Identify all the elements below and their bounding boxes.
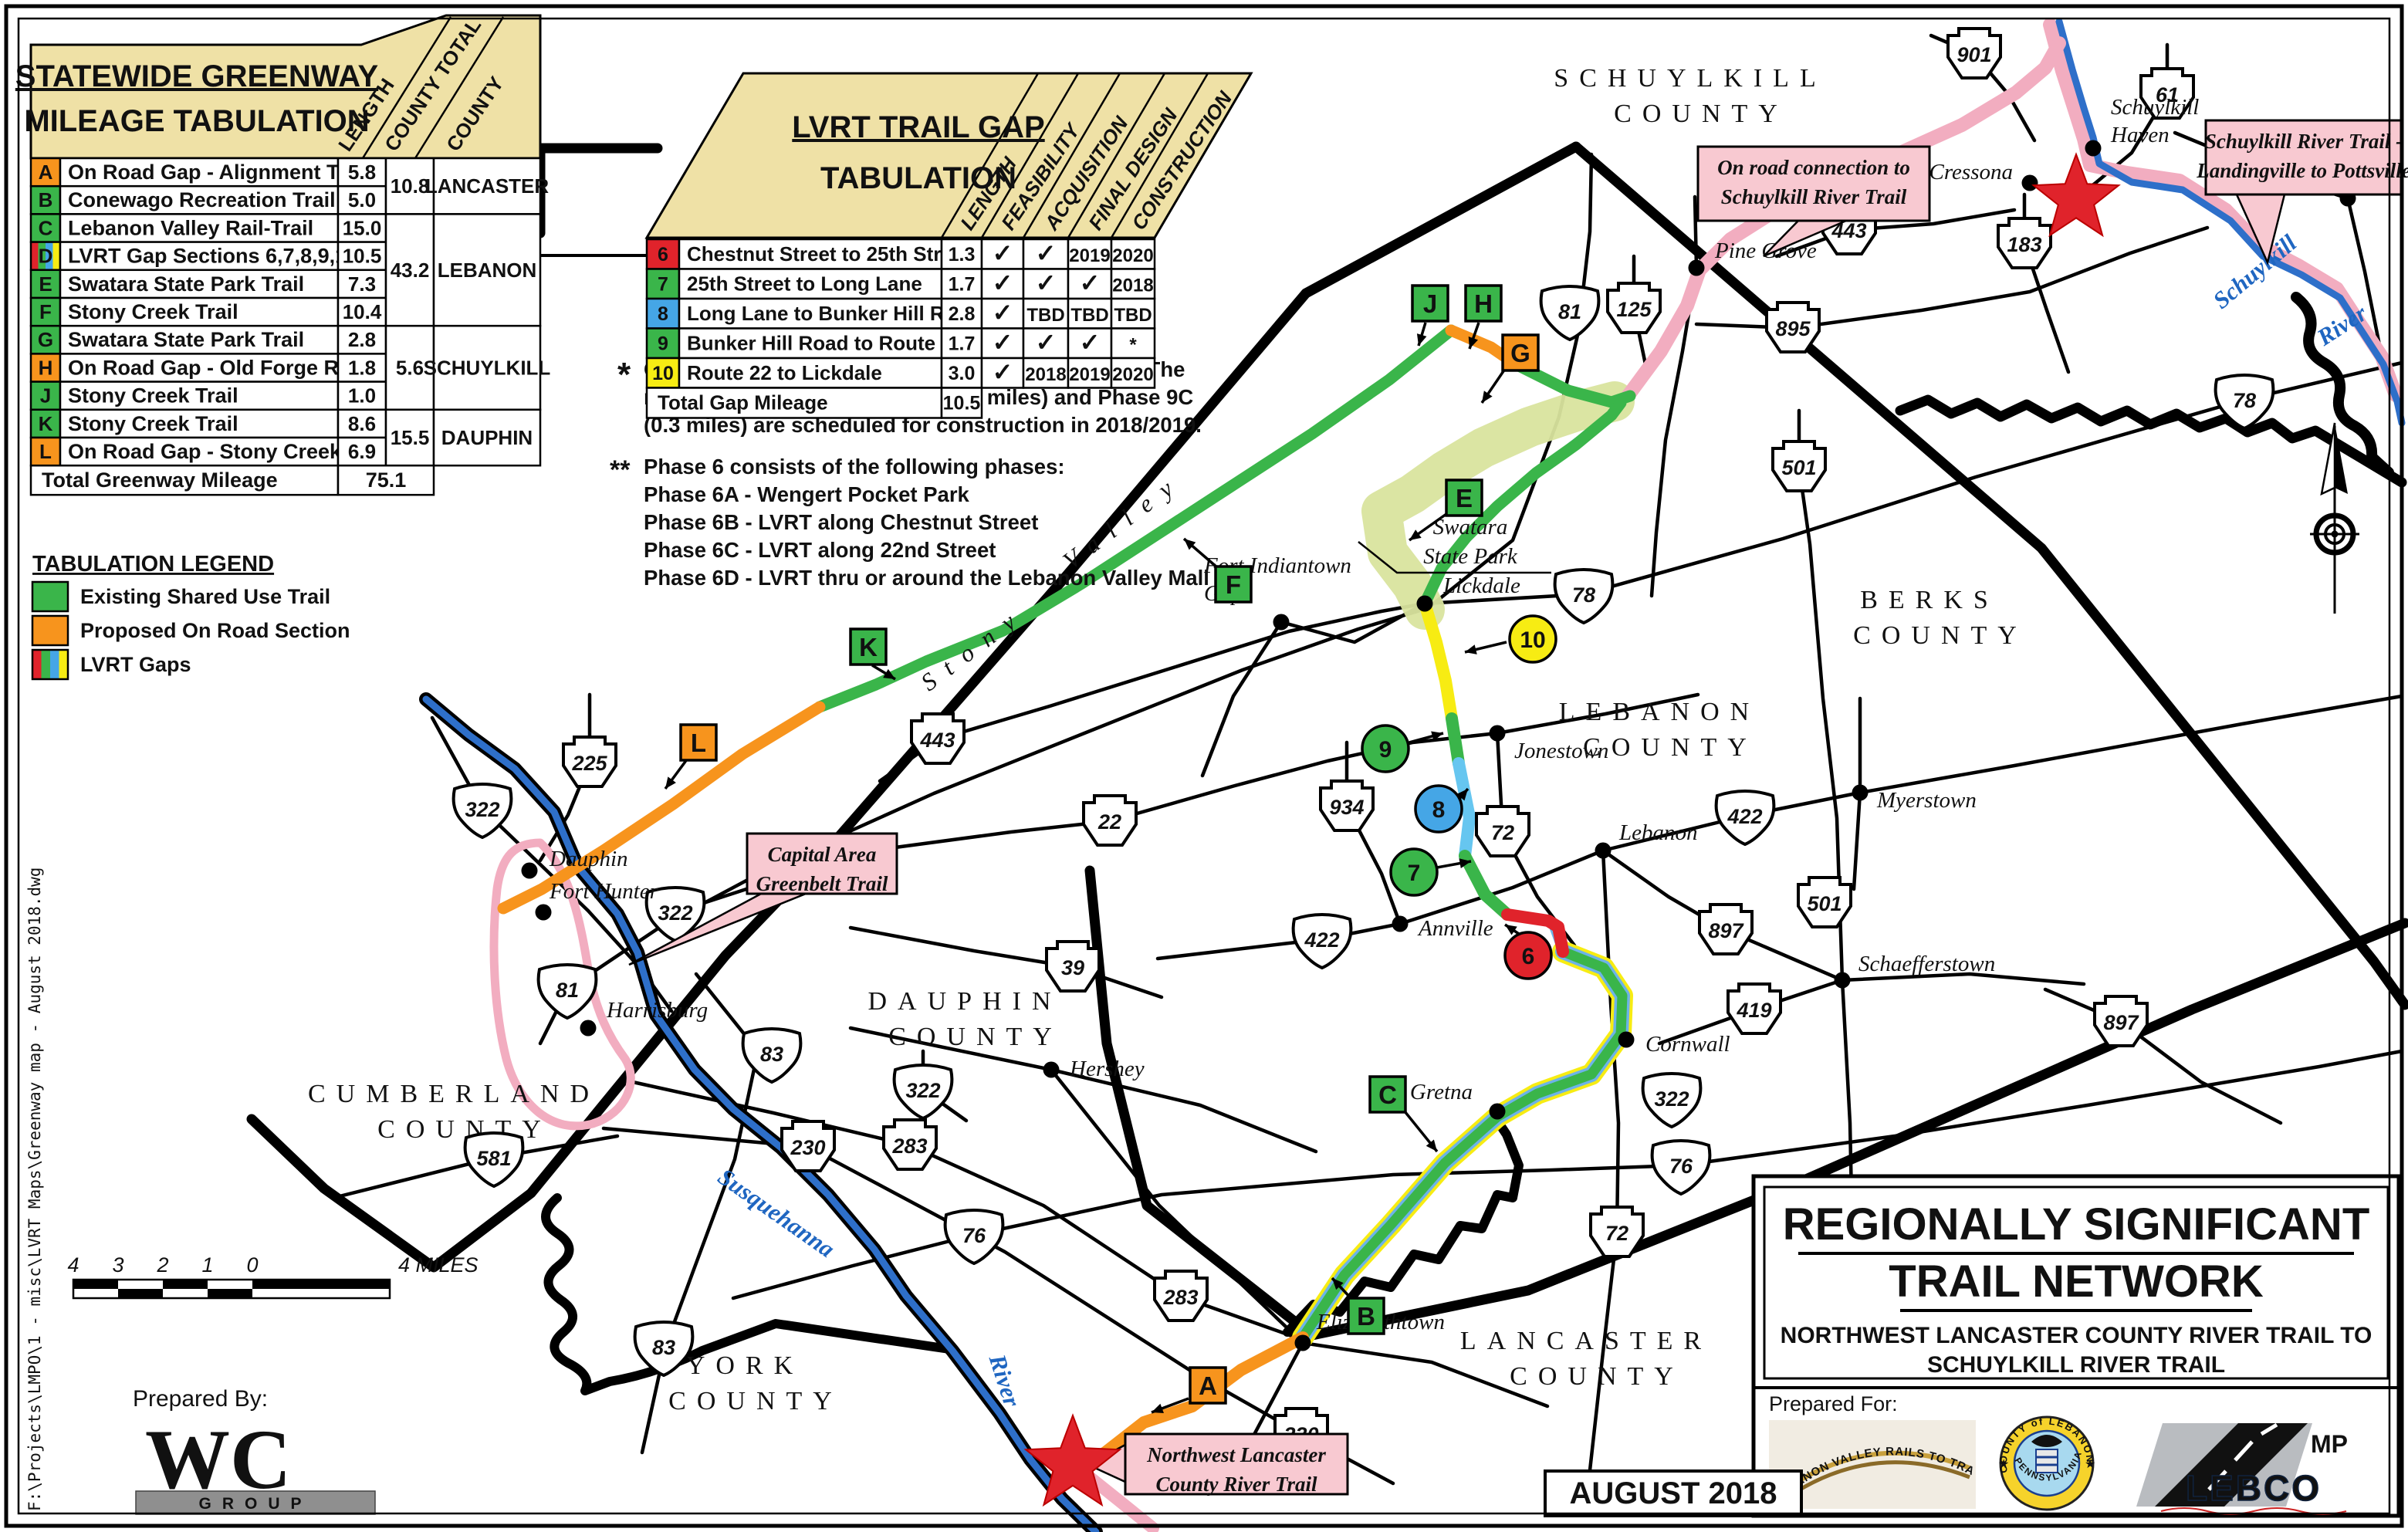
- legend-items: Existing Shared Use TrailProposed On Roa…: [32, 582, 350, 679]
- svg-text:On road connection to: On road connection to: [1717, 156, 1910, 179]
- gap-status: ✓: [1036, 239, 1057, 267]
- route-shield-283: 283: [1155, 1271, 1207, 1321]
- svg-text:897: 897: [1708, 919, 1744, 942]
- county-name: LEBANON: [438, 259, 537, 282]
- scale-tick: 4: [67, 1253, 79, 1277]
- town-dot: [1618, 1032, 1635, 1048]
- row-letter: K: [39, 412, 53, 435]
- svg-text:81: 81: [1558, 300, 1581, 323]
- town-myerstown: Myerstown: [1852, 785, 1977, 813]
- svg-text:SCHUYLKILL: SCHUYLKILL: [1554, 64, 1826, 93]
- route-shield-83: 83: [635, 1322, 693, 1375]
- svg-text:76: 76: [962, 1224, 986, 1247]
- route-shield-183: 183: [1998, 218, 2051, 268]
- route-shield-78: 78: [1555, 570, 1613, 623]
- svg-text:COUNTY: COUNTY: [1853, 621, 2028, 650]
- row-letter: D: [39, 245, 53, 268]
- svg-text:7: 7: [1408, 861, 1421, 886]
- gap-number: 9: [658, 333, 668, 355]
- gap-length: 3.0: [949, 363, 976, 384]
- town-label: Hershey: [1069, 1057, 1145, 1081]
- town-schuylkill-haven: SchuylkillHaven: [2085, 95, 2200, 157]
- trail-length: 7.3: [348, 272, 376, 296]
- town-dot: [1417, 596, 1433, 612]
- lvrt-table-title: LVRT TRAIL GAP: [792, 110, 1044, 144]
- gap-status: 2019: [1069, 245, 1110, 266]
- callout-nw-lancaster-river-trail: Northwest LancasterCounty River Trail: [1088, 1434, 1348, 1496]
- town-schaefferstown: Schaefferstown: [1835, 952, 1996, 989]
- county-label: LANCASTERCOUNTY: [1460, 1327, 1712, 1391]
- total-label: Total Gap Mileage: [658, 391, 828, 414]
- route-shield-322: 322: [1643, 1074, 1701, 1127]
- svg-text:934: 934: [1329, 796, 1364, 819]
- row-letter: J: [40, 384, 51, 408]
- table-row: GSwatara State Park Trail2.8: [31, 326, 386, 353]
- town-label: Jonestown: [1514, 739, 1608, 763]
- table-row: KStony Creek Trail8.6: [31, 410, 386, 438]
- row-letter: E: [39, 272, 52, 296]
- svg-text:501: 501: [1807, 892, 1842, 915]
- trail-name: LVRT Gap Sections 6,7,8,9,10: [68, 245, 358, 268]
- gap-status: ✓: [1080, 329, 1101, 357]
- town-dot: [1689, 260, 1705, 276]
- row-letter: L: [39, 440, 52, 463]
- trail-length: 5.8: [348, 161, 376, 184]
- town-dot: [1835, 972, 1851, 989]
- town-label: Myerstown: [1876, 788, 1977, 813]
- route-shield-225: 225: [563, 737, 616, 786]
- statewide-mileage-table: STATEWIDE GREENWAYMILEAGE TABULATIONLENG…: [15, 14, 551, 495]
- town-dot: [1043, 1062, 1060, 1078]
- trail-length: 10.5: [343, 245, 382, 268]
- route-shield-581: 581: [465, 1133, 523, 1186]
- trail-length: 15.0: [343, 216, 382, 239]
- date-box: AUGUST 2018: [1545, 1471, 1801, 1516]
- total-value: 10.5: [943, 393, 981, 414]
- scale-unit-label: 4 MILES: [398, 1253, 479, 1277]
- statewide-table-title: STATEWIDE GREENWAY: [15, 59, 379, 93]
- table-row: BConewago Recreation Trail5.0: [31, 186, 386, 214]
- county-name: SCHUYLKILL: [424, 357, 551, 380]
- gap-7-green: [1465, 856, 1507, 915]
- svg-text:H: H: [1474, 289, 1493, 318]
- wc-group-sub: GROUP: [198, 1495, 312, 1513]
- gap-status: 2020: [1112, 245, 1153, 266]
- statewide-table-title2: MILEAGE TABULATION: [24, 104, 369, 138]
- town-label: Schuylkill: [2111, 95, 2199, 120]
- town-label: Lebanon: [1618, 820, 1698, 845]
- map-title-line1: REGIONALLY SIGNIFICANT: [1783, 1199, 2370, 1250]
- table-row: DLVRT Gap Sections 6,7,8,9,1010.5: [31, 242, 386, 270]
- svg-text:Schuylkill River Trail -: Schuylkill River Trail -: [2205, 130, 2403, 153]
- svg-text:LEBCO: LEBCO: [2186, 1468, 2322, 1508]
- route-shield-443: 443: [911, 714, 964, 763]
- park-label-line2: State Park: [1423, 544, 1518, 569]
- row-letter: H: [39, 356, 53, 379]
- table-row: 6Chestnut Street to 25th Street **1.3✓✓2…: [647, 239, 1155, 269]
- svg-text:901: 901: [1956, 43, 1991, 66]
- svg-text:LEBANON: LEBANON: [1559, 698, 1760, 726]
- row-letter: G: [38, 328, 53, 351]
- county-label: YORKCOUNTY: [668, 1351, 843, 1415]
- svg-text:K: K: [859, 633, 878, 661]
- svg-text:501: 501: [1781, 456, 1816, 479]
- svg-text:443: 443: [919, 729, 955, 752]
- table-row: 9Bunker Hill Road to Route 221.7✓✓✓*: [647, 329, 1155, 359]
- svg-text:Capital Area: Capital Area: [768, 843, 877, 866]
- route-shield-76: 76: [1652, 1141, 1710, 1194]
- county-name: DAUPHIN: [441, 426, 533, 449]
- svg-text:COUNTY: COUNTY: [1583, 733, 1757, 762]
- svg-text:F: F: [1226, 570, 1241, 599]
- svg-text:581: 581: [476, 1147, 511, 1170]
- town-dot: [1392, 916, 1409, 932]
- county-total: 5.6: [396, 357, 424, 380]
- route-shield-422: 422: [1294, 915, 1351, 968]
- county-label: DAUPHINCOUNTY: [868, 987, 1063, 1051]
- county-name: LANCASTER: [425, 174, 550, 198]
- town-lebanon: Lebanon: [1595, 820, 1698, 859]
- gap-status: ✓: [1080, 269, 1101, 297]
- gap-number: 10: [652, 363, 674, 384]
- svg-text:72: 72: [1605, 1222, 1628, 1245]
- callout-schuylkill-river-trail: Schuylkill River Trail -Landingville to …: [2196, 120, 2408, 262]
- svg-text:283: 283: [891, 1135, 927, 1158]
- svg-text:22: 22: [1097, 810, 1121, 834]
- svg-text:DAUPHIN: DAUPHIN: [868, 987, 1062, 1016]
- route-shield-934: 934: [1321, 781, 1373, 830]
- legend-label: Proposed On Road Section: [80, 619, 350, 642]
- gap-length: 2.8: [949, 303, 976, 325]
- table-row: 725th Street to Long Lane1.7✓✓✓2018: [647, 269, 1155, 299]
- town-label: Haven: [2110, 123, 2170, 147]
- row-letter: C: [39, 216, 53, 239]
- route-shield-419: 419: [1728, 984, 1781, 1033]
- table-row: FStony Creek Trail10.4: [31, 298, 386, 326]
- svg-text:8: 8: [1432, 797, 1446, 823]
- town-label: Schaefferstown: [1858, 952, 1995, 976]
- svg-text:CUMBERLAND: CUMBERLAND: [308, 1080, 600, 1108]
- table-row: 10Route 22 to Lickdale3.0✓201820192020: [647, 358, 1155, 388]
- map-title-line2: TRAIL NETWORK: [1889, 1256, 2264, 1307]
- prepared-by-block: Prepared By: WC GROUP: [133, 1386, 375, 1514]
- legend-label: Existing Shared Use Trail: [80, 585, 330, 608]
- legend-title: TABULATION LEGEND: [32, 552, 274, 577]
- route-shield-39: 39: [1047, 942, 1099, 991]
- trail-name: Swatara State Park Trail: [68, 272, 304, 296]
- gap-status: 2019: [1069, 364, 1110, 385]
- gap-status: 2018: [1025, 364, 1066, 385]
- svg-text:283: 283: [1162, 1286, 1198, 1309]
- svg-text:72: 72: [1491, 821, 1514, 844]
- route-shield-125: 125: [1608, 283, 1660, 333]
- svg-text:B: B: [1357, 1302, 1375, 1331]
- gap-name: Bunker Hill Road to Route 22: [687, 332, 963, 355]
- scale-tick: 0: [246, 1253, 258, 1277]
- table-row: AOn Road Gap - Alignment TBD5.8: [31, 158, 386, 186]
- town-fort-hunter: Fort Hunter: [536, 879, 659, 921]
- town-label: Harrisburg: [606, 998, 708, 1023]
- scale-tick: 3: [112, 1253, 123, 1277]
- gap-length: 1.3: [949, 244, 976, 265]
- svg-text:230: 230: [790, 1136, 825, 1159]
- gap-number: 6: [658, 244, 668, 265]
- gap-marker-10: 10: [1465, 616, 1556, 662]
- route-shield-501: 501: [1773, 441, 1825, 491]
- trail-name: On Road Gap - Old Forge Road: [68, 356, 376, 379]
- svg-text:L: L: [691, 729, 706, 757]
- town-label: Annville: [1417, 916, 1493, 941]
- town-label: Dauphin: [549, 847, 628, 871]
- svg-text:39: 39: [1061, 956, 1084, 979]
- svg-text:78: 78: [1572, 583, 1595, 607]
- svg-text:322: 322: [905, 1079, 940, 1102]
- town-dot: [1295, 1335, 1311, 1351]
- seal-star: ★: [2085, 1458, 2095, 1471]
- gap-status: 2020: [1112, 364, 1153, 385]
- svg-text:E: E: [1456, 484, 1473, 512]
- svg-text:C: C: [1378, 1081, 1397, 1109]
- town-label: Fort Hunter: [549, 879, 659, 904]
- town-dot: [580, 1020, 597, 1037]
- svg-text:125: 125: [1616, 298, 1652, 321]
- svg-text:83: 83: [760, 1043, 783, 1066]
- county-total: 15.5: [391, 426, 430, 449]
- route-shield-81: 81: [1541, 286, 1599, 340]
- route-shield-422: 422: [1716, 791, 1774, 844]
- note-phase: Phase 6D - LVRT thru or around the Leban…: [644, 566, 1209, 590]
- legend-item: Existing Shared Use Trail: [32, 582, 330, 611]
- route-shield-897: 897: [2095, 996, 2147, 1046]
- svg-text:422: 422: [1304, 928, 1339, 952]
- svg-text:81: 81: [556, 979, 579, 1002]
- gap-status: ✓: [1036, 269, 1057, 297]
- county-label: BERKSCOUNTY: [1853, 586, 2028, 650]
- gap-status: ✓: [993, 269, 1013, 297]
- gap-length: 1.7: [949, 333, 976, 355]
- svg-text:Schuylkill River Trail: Schuylkill River Trail: [1721, 185, 1907, 208]
- svg-text:YORK: YORK: [686, 1351, 803, 1380]
- gap-marker-8: 8: [1415, 786, 1468, 832]
- town-dot: [1490, 1104, 1506, 1120]
- town-dot: [2085, 140, 2102, 157]
- svg-text:COUNTY: COUNTY: [888, 1023, 1063, 1051]
- prepared-by-label: Prepared By:: [133, 1386, 268, 1412]
- route-shield-22: 22: [1084, 796, 1136, 845]
- route-shield-895: 895: [1767, 303, 1819, 352]
- route-shield-76: 76: [945, 1210, 1003, 1263]
- route-shield-72: 72: [1591, 1207, 1643, 1256]
- gap-name: Long Lane to Bunker Hill Road: [687, 302, 980, 325]
- svg-text:897: 897: [2103, 1011, 2139, 1034]
- trail-name: Conewago Recreation Trail: [68, 188, 336, 211]
- svg-text:895: 895: [1775, 317, 1811, 340]
- map-date: AUGUST 2018: [1570, 1476, 1777, 1510]
- svg-text:419: 419: [1736, 999, 1771, 1022]
- route-shield-897: 897: [1699, 905, 1752, 954]
- svg-text:9: 9: [1379, 737, 1392, 763]
- town-dot: [1273, 614, 1290, 631]
- trail-name: Stony Creek Trail: [68, 384, 238, 408]
- trail-name: Stony Creek Trail: [68, 412, 238, 435]
- trail-length: 5.0: [348, 188, 376, 211]
- gap-status: ✓: [1036, 329, 1057, 357]
- table-row: HOn Road Gap - Old Forge Road1.8: [31, 353, 386, 381]
- svg-text:183: 183: [2007, 233, 2041, 256]
- town-label: Cressona: [1929, 160, 2014, 184]
- town-cressona: Cressona: [1929, 160, 2038, 191]
- trail-length: 1.0: [348, 384, 376, 408]
- gap-status: TBD: [1114, 305, 1152, 326]
- gap-marker-6: 6: [1505, 925, 1551, 979]
- svg-text:J: J: [1423, 289, 1437, 318]
- svg-text:322: 322: [465, 798, 499, 821]
- row-letter: F: [39, 300, 52, 323]
- table-row: LOn Road Gap - Stony Creek Rd6.9: [31, 438, 386, 465]
- svg-text:322: 322: [658, 901, 692, 925]
- route-shield-72: 72: [1476, 807, 1529, 856]
- route-shield-501: 501: [1798, 878, 1851, 927]
- svg-text:A: A: [1199, 1371, 1217, 1400]
- legend-label: LVRT Gaps: [80, 653, 191, 676]
- gap-name: Route 22 to Lickdale: [687, 361, 882, 384]
- gap-marker-9: 9: [1362, 725, 1443, 772]
- map-sheet: 4 3 2 1 0 4 MILES * Construction of 1.2 …: [0, 0, 2408, 1532]
- trail-length: 6.9: [348, 440, 376, 463]
- svg-text:78: 78: [2233, 389, 2256, 412]
- file-path: F:\Projects\LMPO\1 - misc\LVRT Maps\Gree…: [25, 867, 44, 1511]
- svg-text:Landingville to Pottsville: Landingville to Pottsville: [2196, 159, 2408, 182]
- town-label: Pine Grove: [1714, 238, 1817, 263]
- map-subtitle-line2: SCHUYLKILL RIVER TRAIL: [1927, 1352, 2225, 1378]
- gap-length: 1.7: [949, 274, 976, 296]
- total-label: Total Greenway Mileage: [42, 468, 278, 492]
- route-shield-322: 322: [895, 1065, 952, 1118]
- gap-status: ✓: [993, 239, 1013, 267]
- town-dot: [536, 905, 552, 921]
- route-shield-901: 901: [1948, 29, 2000, 78]
- route-shield-81: 81: [539, 965, 597, 1018]
- gap-status: TBD: [1070, 305, 1108, 326]
- scale-bar: 4 3 2 1 0 4 MILES: [67, 1253, 478, 1298]
- svg-text:322: 322: [1654, 1087, 1689, 1111]
- table-row: 8Long Lane to Bunker Hill Road2.8✓TBDTBD…: [647, 299, 1155, 329]
- park-label-line1: Swatara: [1433, 515, 1508, 539]
- town-dot: [2022, 175, 2038, 191]
- town-label: Lickdale: [1442, 573, 1520, 598]
- trail-name: Swatara State Park Trail: [68, 328, 304, 351]
- gap-number: 7: [658, 274, 668, 296]
- svg-text:Greenbelt Trail: Greenbelt Trail: [756, 872, 888, 895]
- county-total: 43.2: [391, 259, 430, 282]
- svg-text:MP: MP: [2311, 1430, 2348, 1458]
- town-label: Cornwall: [1645, 1032, 1730, 1057]
- svg-text:COUNTY: COUNTY: [1510, 1362, 1684, 1391]
- gap-status: ✓: [993, 358, 1013, 386]
- gap-name: 25th Street to Long Lane: [687, 272, 922, 296]
- svg-text:225: 225: [571, 752, 607, 775]
- total-value: 75.1: [366, 468, 407, 492]
- county-label: SCHUYLKILLCOUNTY: [1554, 64, 1826, 128]
- lebco-mpo-logo: MP LEBCO: [2136, 1423, 2348, 1514]
- svg-text:COUNTY: COUNTY: [668, 1387, 843, 1415]
- town-annville: Annville: [1392, 916, 1493, 942]
- trail-name: Lebanon Valley Rail-Trail: [68, 216, 313, 239]
- trail-name: On Road Gap - Alignment TBD: [68, 161, 370, 184]
- town-dot: [1852, 785, 1869, 801]
- svg-text:10: 10: [1520, 627, 1545, 653]
- trail-network-map: 4 3 2 1 0 4 MILES * Construction of 1.2 …: [0, 0, 2408, 1532]
- section-marker-K: K: [851, 629, 895, 679]
- svg-text:COUNTY: COUNTY: [1614, 100, 1788, 128]
- note-phase: Phase 6B - LVRT along Chestnut Street: [644, 510, 1038, 534]
- svg-text:Northwest Lancaster: Northwest Lancaster: [1146, 1443, 1326, 1466]
- legend-item: Proposed On Road Section: [32, 616, 350, 645]
- trail-length: 10.4: [343, 300, 382, 323]
- svg-text:422: 422: [1727, 805, 1762, 828]
- tabulation-legend: TABULATION LEGEND: [32, 552, 274, 577]
- gap-status: ✓: [993, 329, 1013, 357]
- scale-tick: 2: [156, 1253, 168, 1277]
- svg-text:6: 6: [1522, 944, 1535, 969]
- legend-item: LVRT Gaps: [32, 650, 191, 679]
- county-label: CUMBERLANDCOUNTY: [308, 1080, 600, 1144]
- note-star-mark: *: [617, 356, 631, 394]
- gap-status: *: [1129, 335, 1137, 356]
- svg-text:76: 76: [1669, 1155, 1693, 1178]
- row-letter: A: [39, 161, 53, 184]
- svg-text:83: 83: [652, 1336, 675, 1359]
- scale-tick: 1: [201, 1253, 213, 1277]
- trail-length: 2.8: [348, 328, 376, 351]
- town-cornwall: Cornwall: [1618, 1032, 1730, 1057]
- table-row: CLebanon Valley Rail-Trail15.0: [31, 214, 386, 242]
- gap-status: 2018: [1112, 276, 1153, 296]
- prepared-for-label: Prepared For:: [1769, 1392, 1898, 1415]
- schuylkill-river: [2059, 22, 2402, 423]
- trail-length: 8.6: [348, 412, 376, 435]
- gap-status: ✓: [993, 299, 1013, 326]
- table-row: ESwatara State Park Trail7.3: [31, 270, 386, 298]
- note-dstar-mark: **: [610, 455, 631, 485]
- svg-text:BERKS: BERKS: [1860, 586, 1999, 614]
- gap-number: 8: [658, 303, 668, 325]
- route-shield-230: 230: [782, 1121, 834, 1171]
- county-total: 10.8: [391, 174, 430, 198]
- note-phase: Phase 6A - Wengert Pocket Park: [644, 482, 970, 506]
- row-letter: B: [39, 188, 53, 211]
- note-phase: Phase 6C - LVRT along 22nd Street: [644, 538, 996, 562]
- table-row: JStony Creek Trail1.0: [31, 382, 386, 410]
- trail-length: 1.8: [348, 356, 376, 379]
- seal-star: ★: [1998, 1458, 2009, 1471]
- svg-text:G: G: [1510, 339, 1530, 367]
- gap-9-green: [1452, 719, 1459, 763]
- svg-text:LANCASTER: LANCASTER: [1460, 1327, 1712, 1355]
- gap-status: TBD: [1026, 305, 1064, 326]
- route-shield-283: 283: [884, 1120, 936, 1169]
- town-dot: [1490, 725, 1506, 742]
- svg-text:County River Trail: County River Trail: [1155, 1473, 1317, 1496]
- map-subtitle-line1: NORTHWEST LANCASTER COUNTY RIVER TRAIL T…: [1781, 1323, 2372, 1348]
- town-dot: [522, 863, 538, 879]
- note-line: Phase 6 consists of the following phases…: [644, 455, 1065, 479]
- trail-name: Stony Creek Trail: [68, 300, 238, 323]
- trail-name: On Road Gap - Stony Creek Rd: [68, 440, 375, 463]
- town-dot: [1595, 843, 1612, 859]
